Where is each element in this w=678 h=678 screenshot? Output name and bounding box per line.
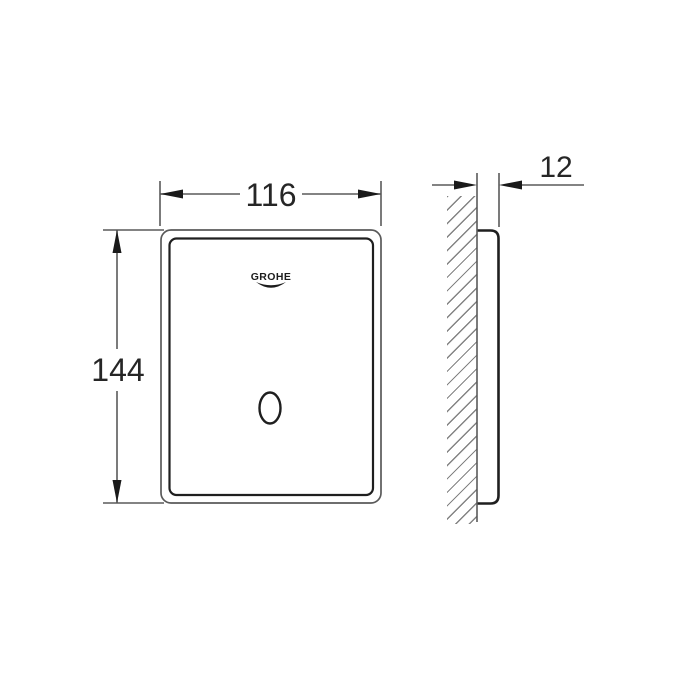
depth-dimension: 12 xyxy=(432,151,584,227)
drawing-canvas: GROHE 116 144 xyxy=(0,0,678,678)
height-dimension: 144 xyxy=(91,230,164,503)
side-plate-profile xyxy=(478,231,499,504)
front-view: GROHE xyxy=(161,230,381,503)
arrow-left-icon xyxy=(160,190,183,199)
arrow-to-plate-icon xyxy=(499,181,522,190)
width-dimension-label: 116 xyxy=(245,177,296,213)
side-view xyxy=(477,173,499,522)
depth-dimension-label: 12 xyxy=(539,151,572,184)
arrow-to-wall-icon xyxy=(454,181,477,190)
arrow-down-icon xyxy=(113,480,122,503)
grohe-logo-text: GROHE xyxy=(251,271,292,283)
width-dimension: 116 xyxy=(160,177,381,226)
technical-drawing: GROHE 116 144 xyxy=(0,0,678,678)
arrow-up-icon xyxy=(113,230,122,253)
sensor-window-oval xyxy=(260,393,281,424)
height-dimension-label: 144 xyxy=(91,352,144,388)
arrow-right-icon xyxy=(358,190,381,199)
